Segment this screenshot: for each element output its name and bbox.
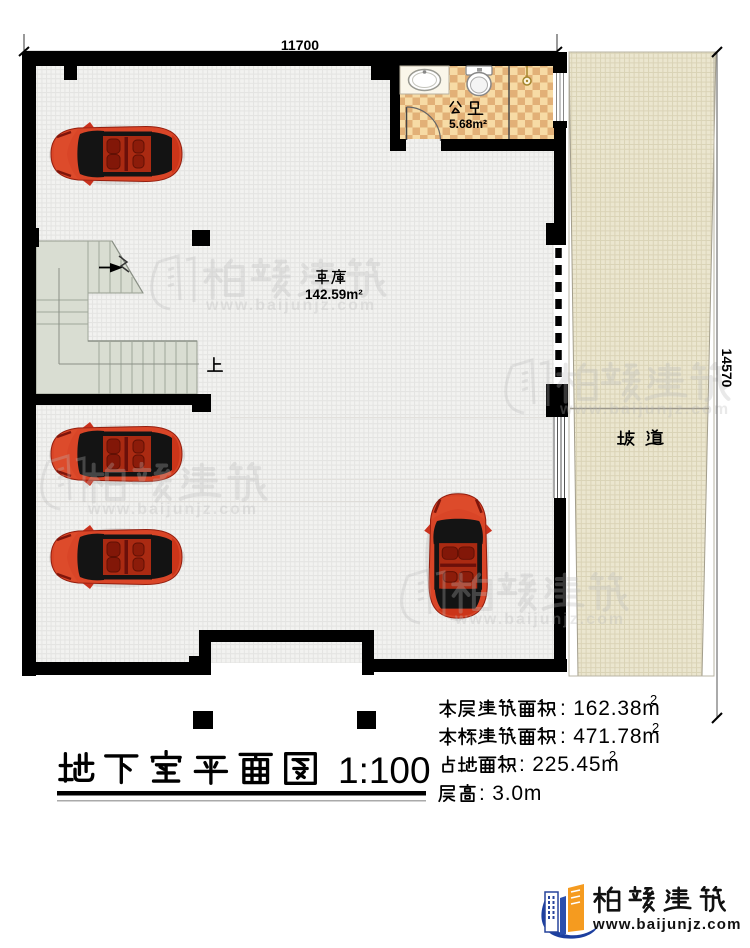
svg-text:1:100: 1:100 [338, 750, 431, 791]
svg-text:www.baijunjz.com: www.baijunjz.com [592, 916, 742, 933]
svg-text:2: 2 [650, 692, 657, 707]
svg-text:5.68m²: 5.68m² [449, 117, 487, 131]
svg-text:www.baijunjz.com: www.baijunjz.com [454, 611, 625, 628]
svg-text:: 225.45m: : 225.45m [519, 753, 620, 776]
svg-text:: 162.38m: : 162.38m [560, 697, 661, 720]
svg-text:11700: 11700 [281, 37, 319, 53]
svg-text:: 3.0m: : 3.0m [479, 782, 542, 805]
svg-text:www.baijunjz.com: www.baijunjz.com [87, 501, 258, 518]
svg-text:2: 2 [652, 720, 659, 735]
svg-text:www.baijunjz.com: www.baijunjz.com [559, 401, 730, 418]
svg-text:: 471.78m: : 471.78m [560, 725, 661, 748]
svg-text:14570: 14570 [719, 349, 735, 388]
svg-text:2: 2 [609, 748, 616, 763]
svg-text:142.59m²: 142.59m² [305, 287, 363, 302]
